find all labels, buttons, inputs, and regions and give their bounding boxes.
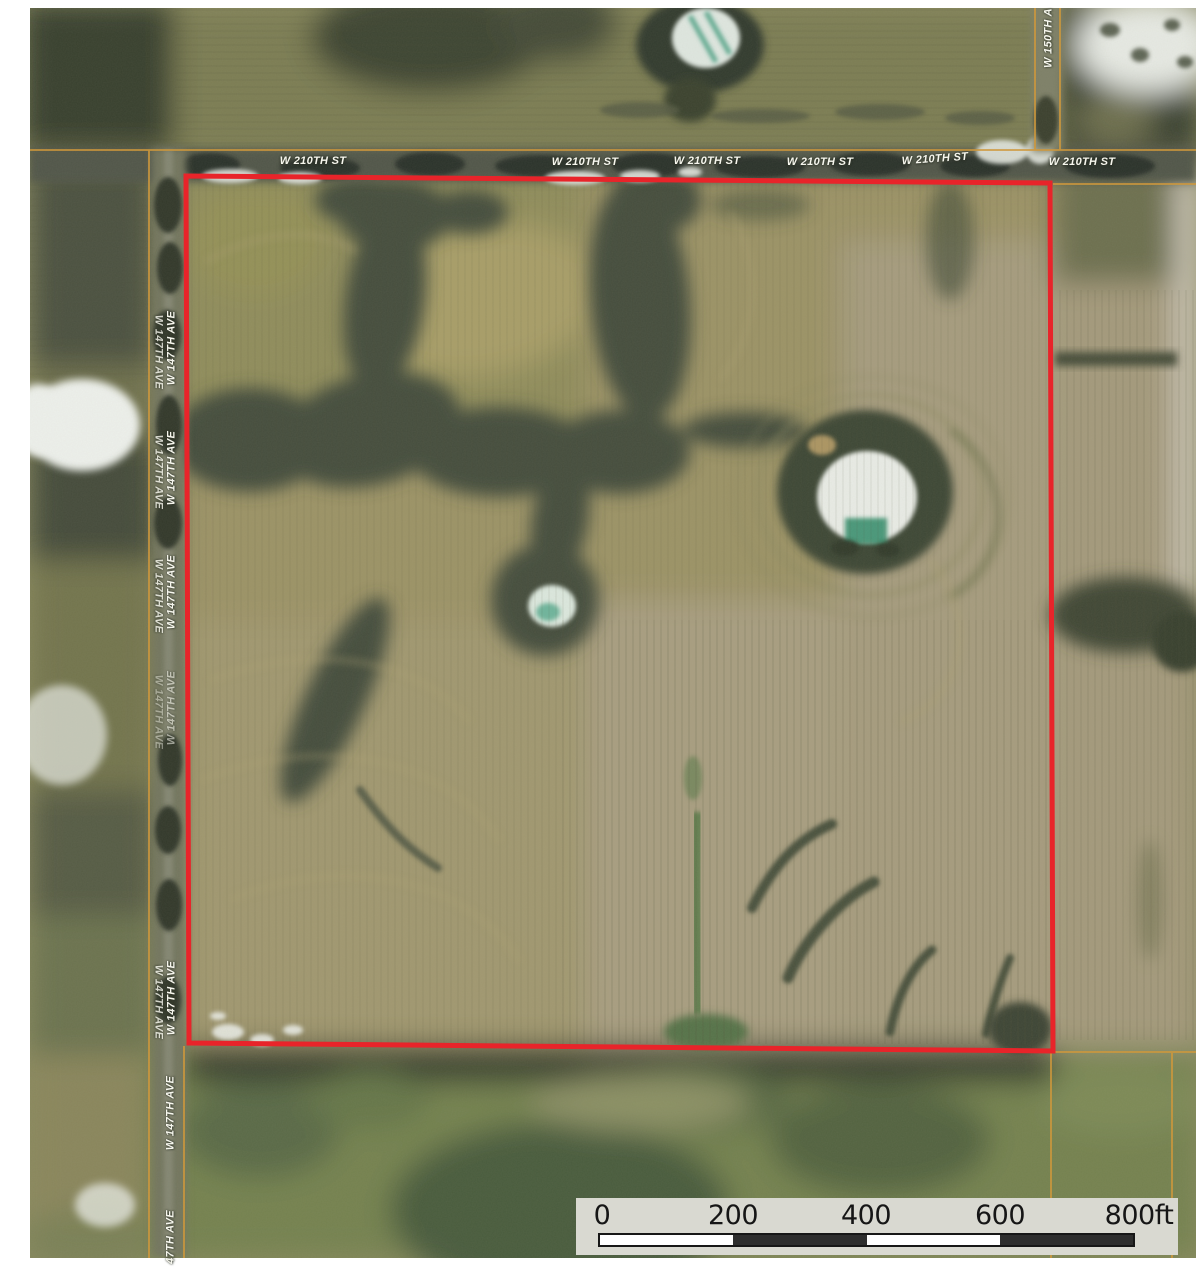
scale-tick-label: 0 (594, 1202, 611, 1229)
street-label-top: W 210TH ST (669, 156, 745, 167)
scale-segment (733, 1235, 866, 1245)
scanned-aerial-parcel-map: W 210TH ST W 210TH ST W 210TH ST W 210TH… (0, 0, 1200, 1271)
aerial-imagery (0, 0, 1200, 1271)
scale-segment (1000, 1235, 1133, 1245)
scale-segment (600, 1235, 733, 1245)
scale-tick-label: 400 (841, 1202, 891, 1229)
scan-grain (28, 6, 1198, 1260)
scale-tick-label: 600 (975, 1202, 1025, 1229)
scale-segment (867, 1235, 1000, 1245)
scale-tick-label: 200 (708, 1202, 758, 1229)
scale-bar-segments (598, 1233, 1135, 1247)
street-label-top: W 210TH ST (1044, 157, 1120, 168)
scale-bar: 0 200 400 600 800ft (576, 1198, 1178, 1255)
street-label-top: W 210TH ST (547, 157, 623, 168)
scale-end-label: 800ft (1105, 1202, 1174, 1229)
street-label-top: W 210TH ST (275, 156, 351, 167)
street-label-top: W 210TH ST (782, 157, 858, 168)
